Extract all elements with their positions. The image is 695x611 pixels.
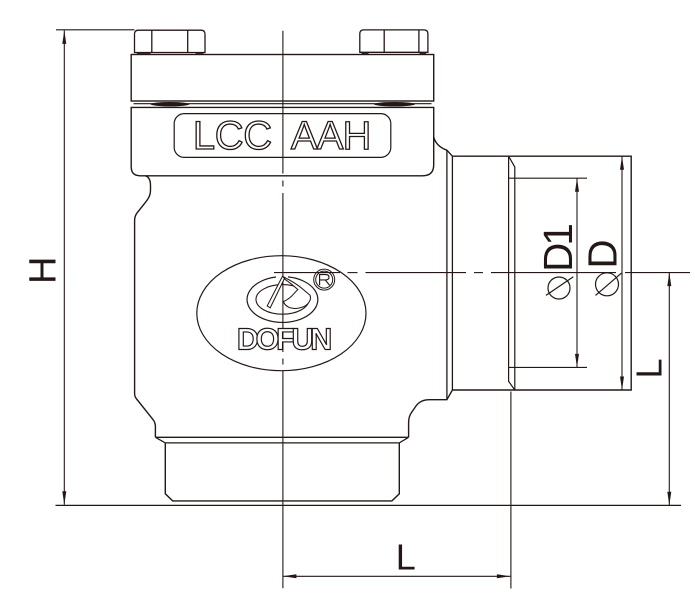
svg-text:L: L [396, 536, 416, 577]
svg-text:AAH: AAH [291, 114, 372, 158]
svg-text:D: D [579, 239, 625, 268]
svg-text:H: H [22, 257, 64, 284]
svg-text:DOFUN: DOFUN [237, 323, 332, 357]
svg-text:L: L [628, 358, 669, 378]
svg-text:D1: D1 [535, 225, 581, 272]
svg-text:LCC: LCC [193, 114, 272, 158]
